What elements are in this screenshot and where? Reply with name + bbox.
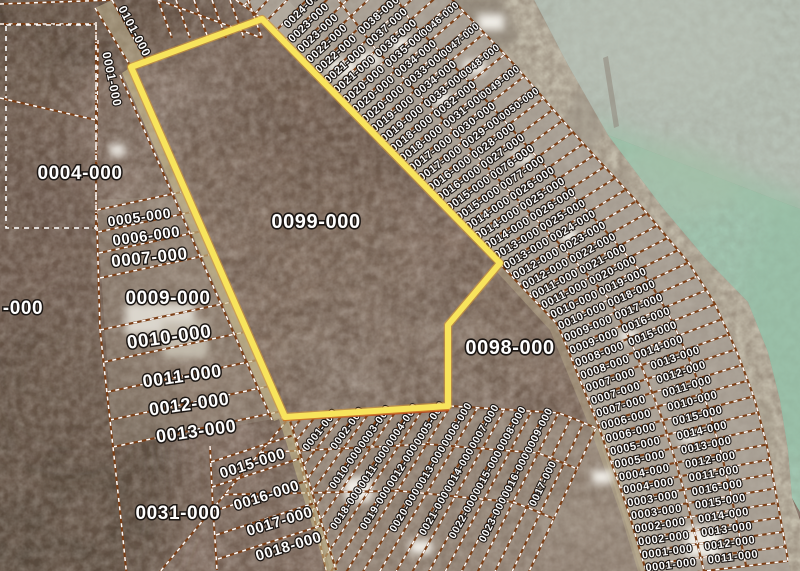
svg-text:0031-000: 0031-000 bbox=[135, 503, 220, 524]
svg-text:0098-000: 0098-000 bbox=[465, 337, 554, 359]
svg-text:-000: -000 bbox=[3, 298, 43, 319]
svg-text:0009-000: 0009-000 bbox=[125, 288, 210, 309]
svg-text:0099-000: 0099-000 bbox=[271, 211, 360, 233]
svg-text:0004-000: 0004-000 bbox=[37, 163, 122, 184]
